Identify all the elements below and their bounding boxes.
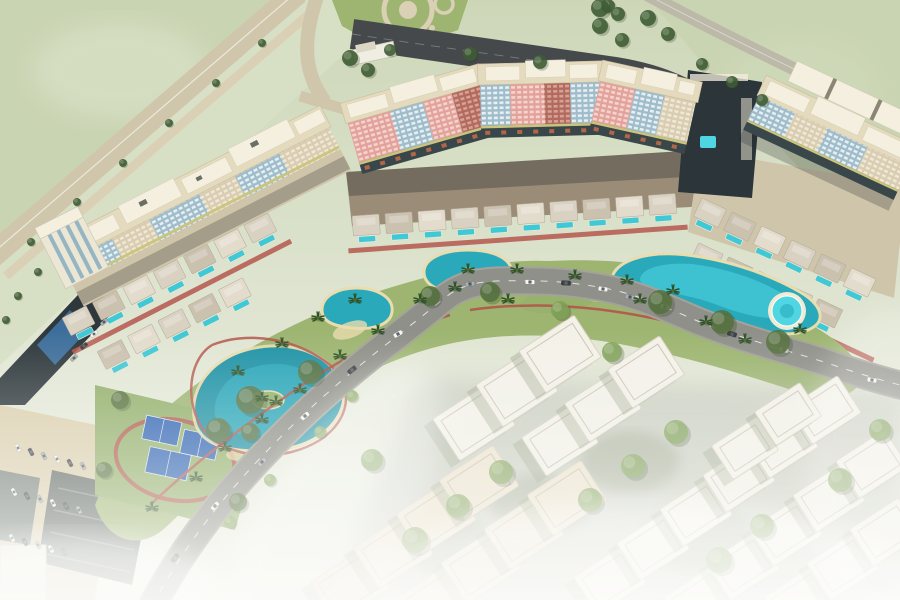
villa-pool [391,233,408,240]
villa-terrace [587,201,606,209]
villa-roof [484,205,512,227]
villa-terrace [455,210,474,218]
villa-pool [622,217,639,224]
villa-terrace [422,213,441,221]
atmospheric-haze [0,310,900,600]
villa-pool [589,219,606,226]
roundabout-center [399,1,417,19]
villa-pool [523,224,540,231]
villa-pool [358,235,375,242]
villa-roof [352,214,380,236]
villa-pool [556,222,573,229]
aerial-render-stage [0,0,900,600]
villa-terrace [356,217,375,225]
villa-terrace [488,208,507,216]
courtyard-pool [700,136,716,148]
villa-pool [424,231,441,238]
masterplan-aerial-render [0,0,900,600]
villa-pool [457,229,474,236]
villa-terrace [389,215,408,223]
villa-terrace [620,199,639,207]
villa-terrace [521,206,540,214]
villa-pool [490,226,507,233]
villa-roof [615,196,643,218]
villa-terrace [554,204,573,212]
villa-pool [655,215,672,222]
villa-terrace [652,197,671,205]
car [561,280,571,285]
car [525,280,535,285]
